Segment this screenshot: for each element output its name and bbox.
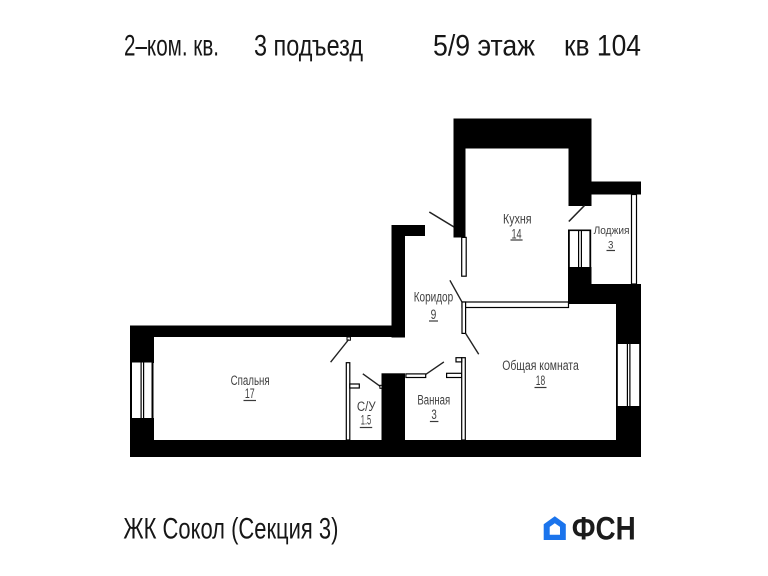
svg-text:кв 104: кв 104 bbox=[564, 30, 641, 63]
svg-text:Коридор: Коридор bbox=[414, 289, 454, 304]
svg-text:ЖК Сокол (Секция 3): ЖК Сокол (Секция 3) bbox=[123, 513, 338, 546]
svg-text:17: 17 bbox=[245, 386, 255, 401]
svg-text:14: 14 bbox=[512, 227, 522, 242]
svg-text:1.5: 1.5 bbox=[361, 413, 371, 428]
svg-text:ФСН: ФСН bbox=[572, 511, 636, 547]
svg-text:5/9 этаж: 5/9 этаж bbox=[433, 30, 535, 63]
svg-text:2–ком. кв.: 2–ком. кв. bbox=[124, 30, 219, 63]
svg-text:3: 3 bbox=[431, 407, 436, 422]
svg-text:Общая комната: Общая комната bbox=[502, 358, 579, 373]
svg-text:Кухня: Кухня bbox=[503, 211, 532, 226]
svg-text:3 подъезд: 3 подъезд bbox=[254, 30, 363, 63]
svg-text:18: 18 bbox=[536, 373, 545, 388]
svg-text:Ванная: Ванная bbox=[417, 393, 450, 408]
svg-text:Лоджия: Лоджия bbox=[594, 225, 630, 237]
svg-text:9: 9 bbox=[431, 307, 437, 322]
